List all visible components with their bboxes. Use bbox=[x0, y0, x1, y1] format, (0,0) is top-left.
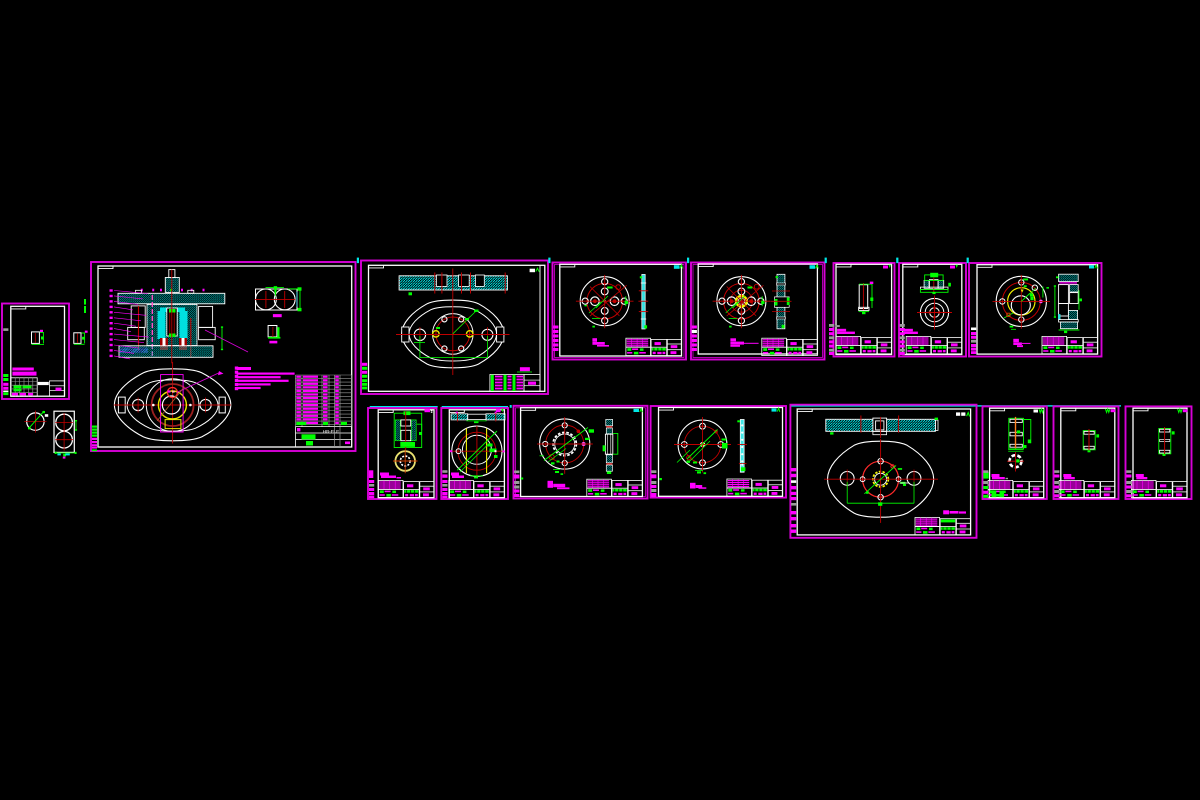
svg-text:HB-FLE: HB-FLE bbox=[323, 429, 339, 434]
